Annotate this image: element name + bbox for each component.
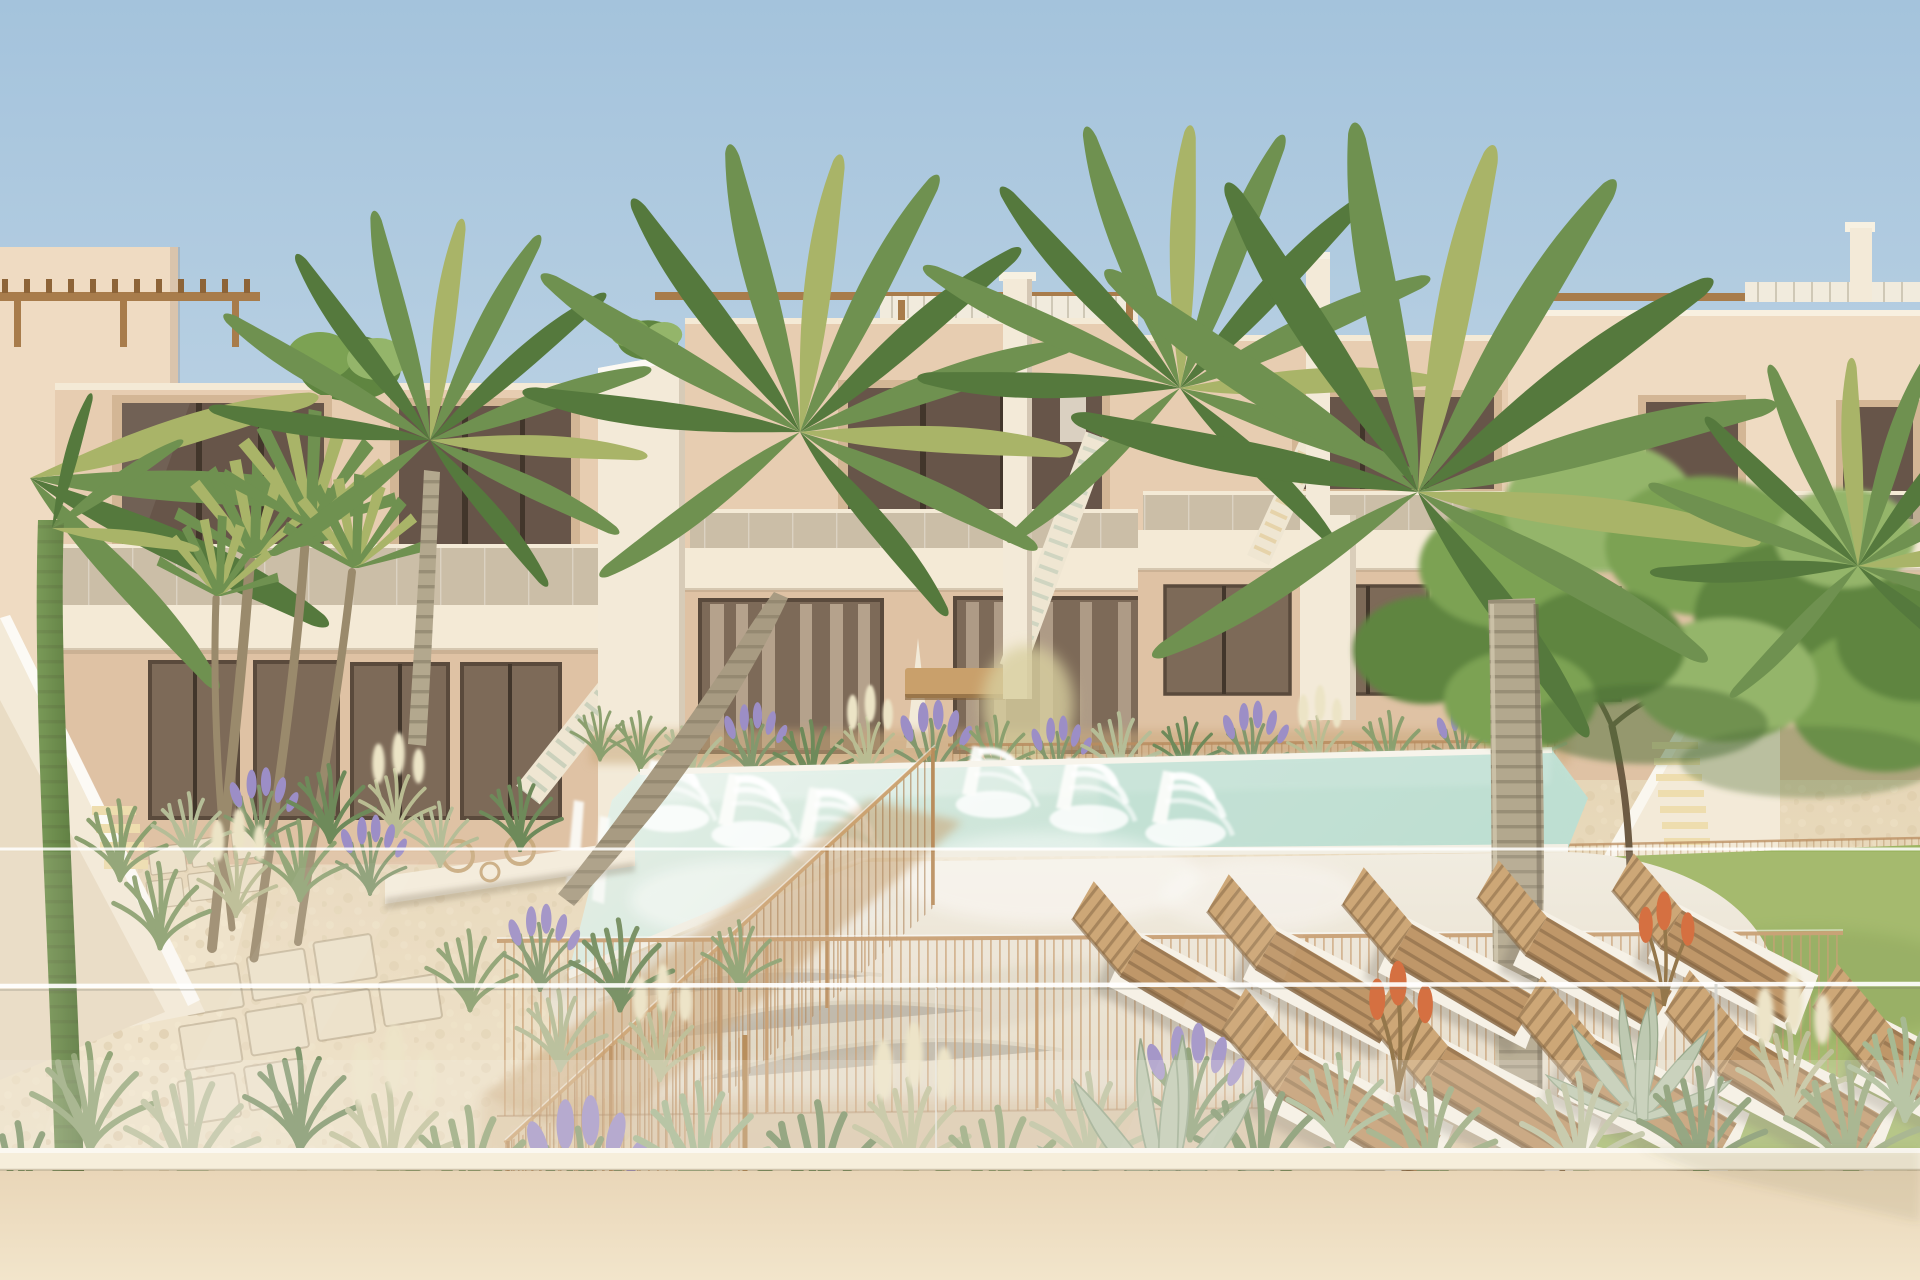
rendering-viewport (0, 0, 1920, 1280)
parapet-wall (0, 1148, 1920, 1280)
glass-rail-edge (0, 984, 1920, 986)
apartment-block-center (655, 292, 1163, 788)
scene-canvas (0, 0, 1920, 1280)
